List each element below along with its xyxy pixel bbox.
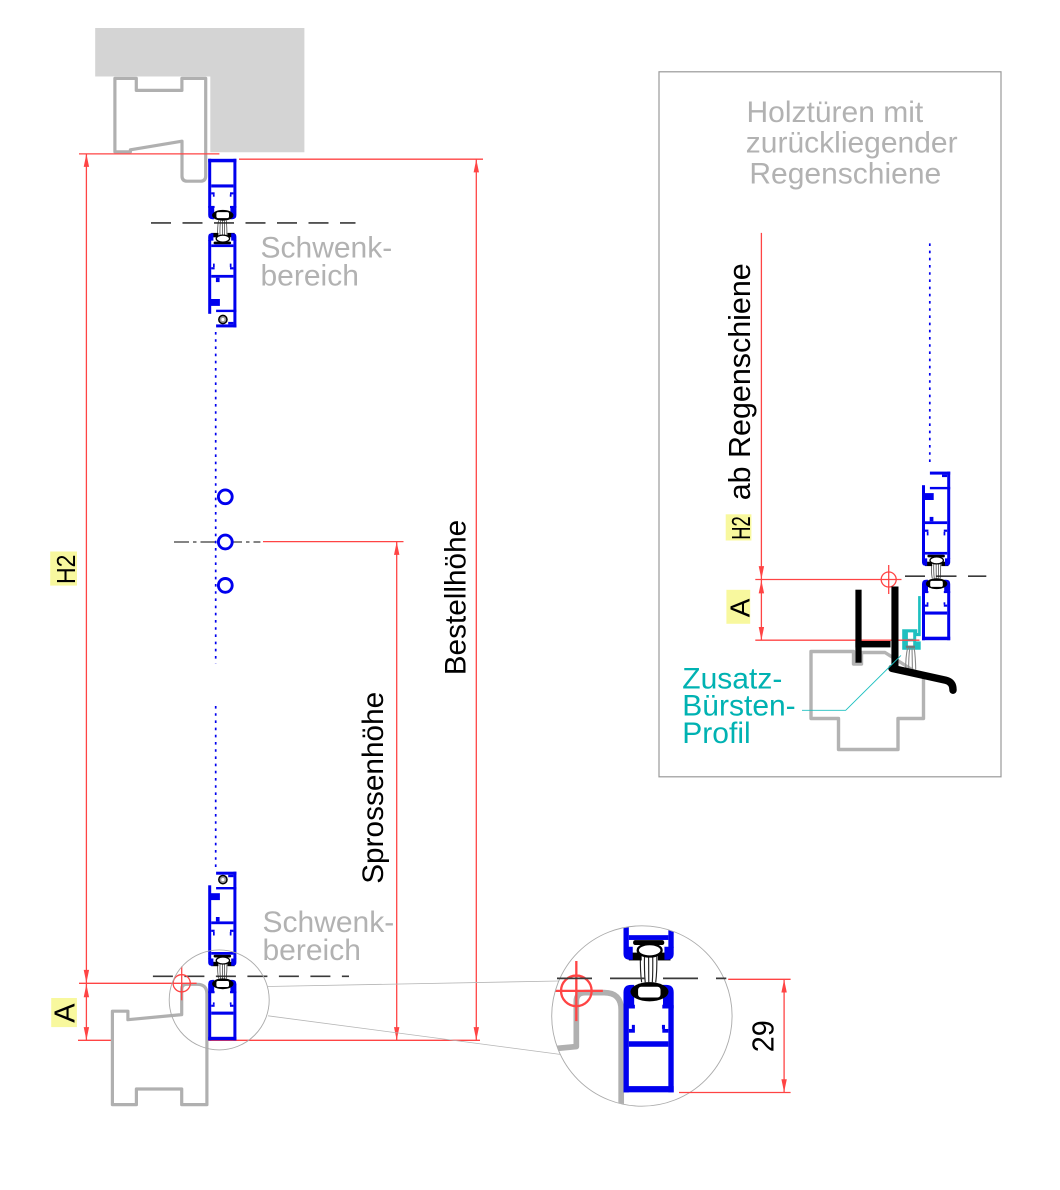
svg-text:ab Regenschiene: ab Regenschiene	[722, 263, 757, 500]
svg-text:Bestellhöhe: Bestellhöhe	[440, 520, 473, 676]
svg-text:H2: H2	[726, 516, 756, 540]
svg-text:Regenschiene: Regenschiene	[749, 158, 941, 191]
svg-text:A: A	[725, 598, 756, 617]
svg-text:Profil: Profil	[682, 717, 750, 750]
svg-text:bereich: bereich	[261, 260, 359, 293]
svg-text:H2: H2	[51, 555, 81, 585]
svg-text:bereich: bereich	[263, 934, 361, 967]
svg-text:zurückliegender: zurückliegender	[746, 127, 958, 160]
svg-text:Sprossenhöhe: Sprossenhöhe	[357, 692, 390, 884]
svg-text:A: A	[49, 1003, 81, 1023]
svg-text:Holztüren mit: Holztüren mit	[747, 96, 924, 129]
svg-text:29: 29	[746, 1020, 781, 1052]
